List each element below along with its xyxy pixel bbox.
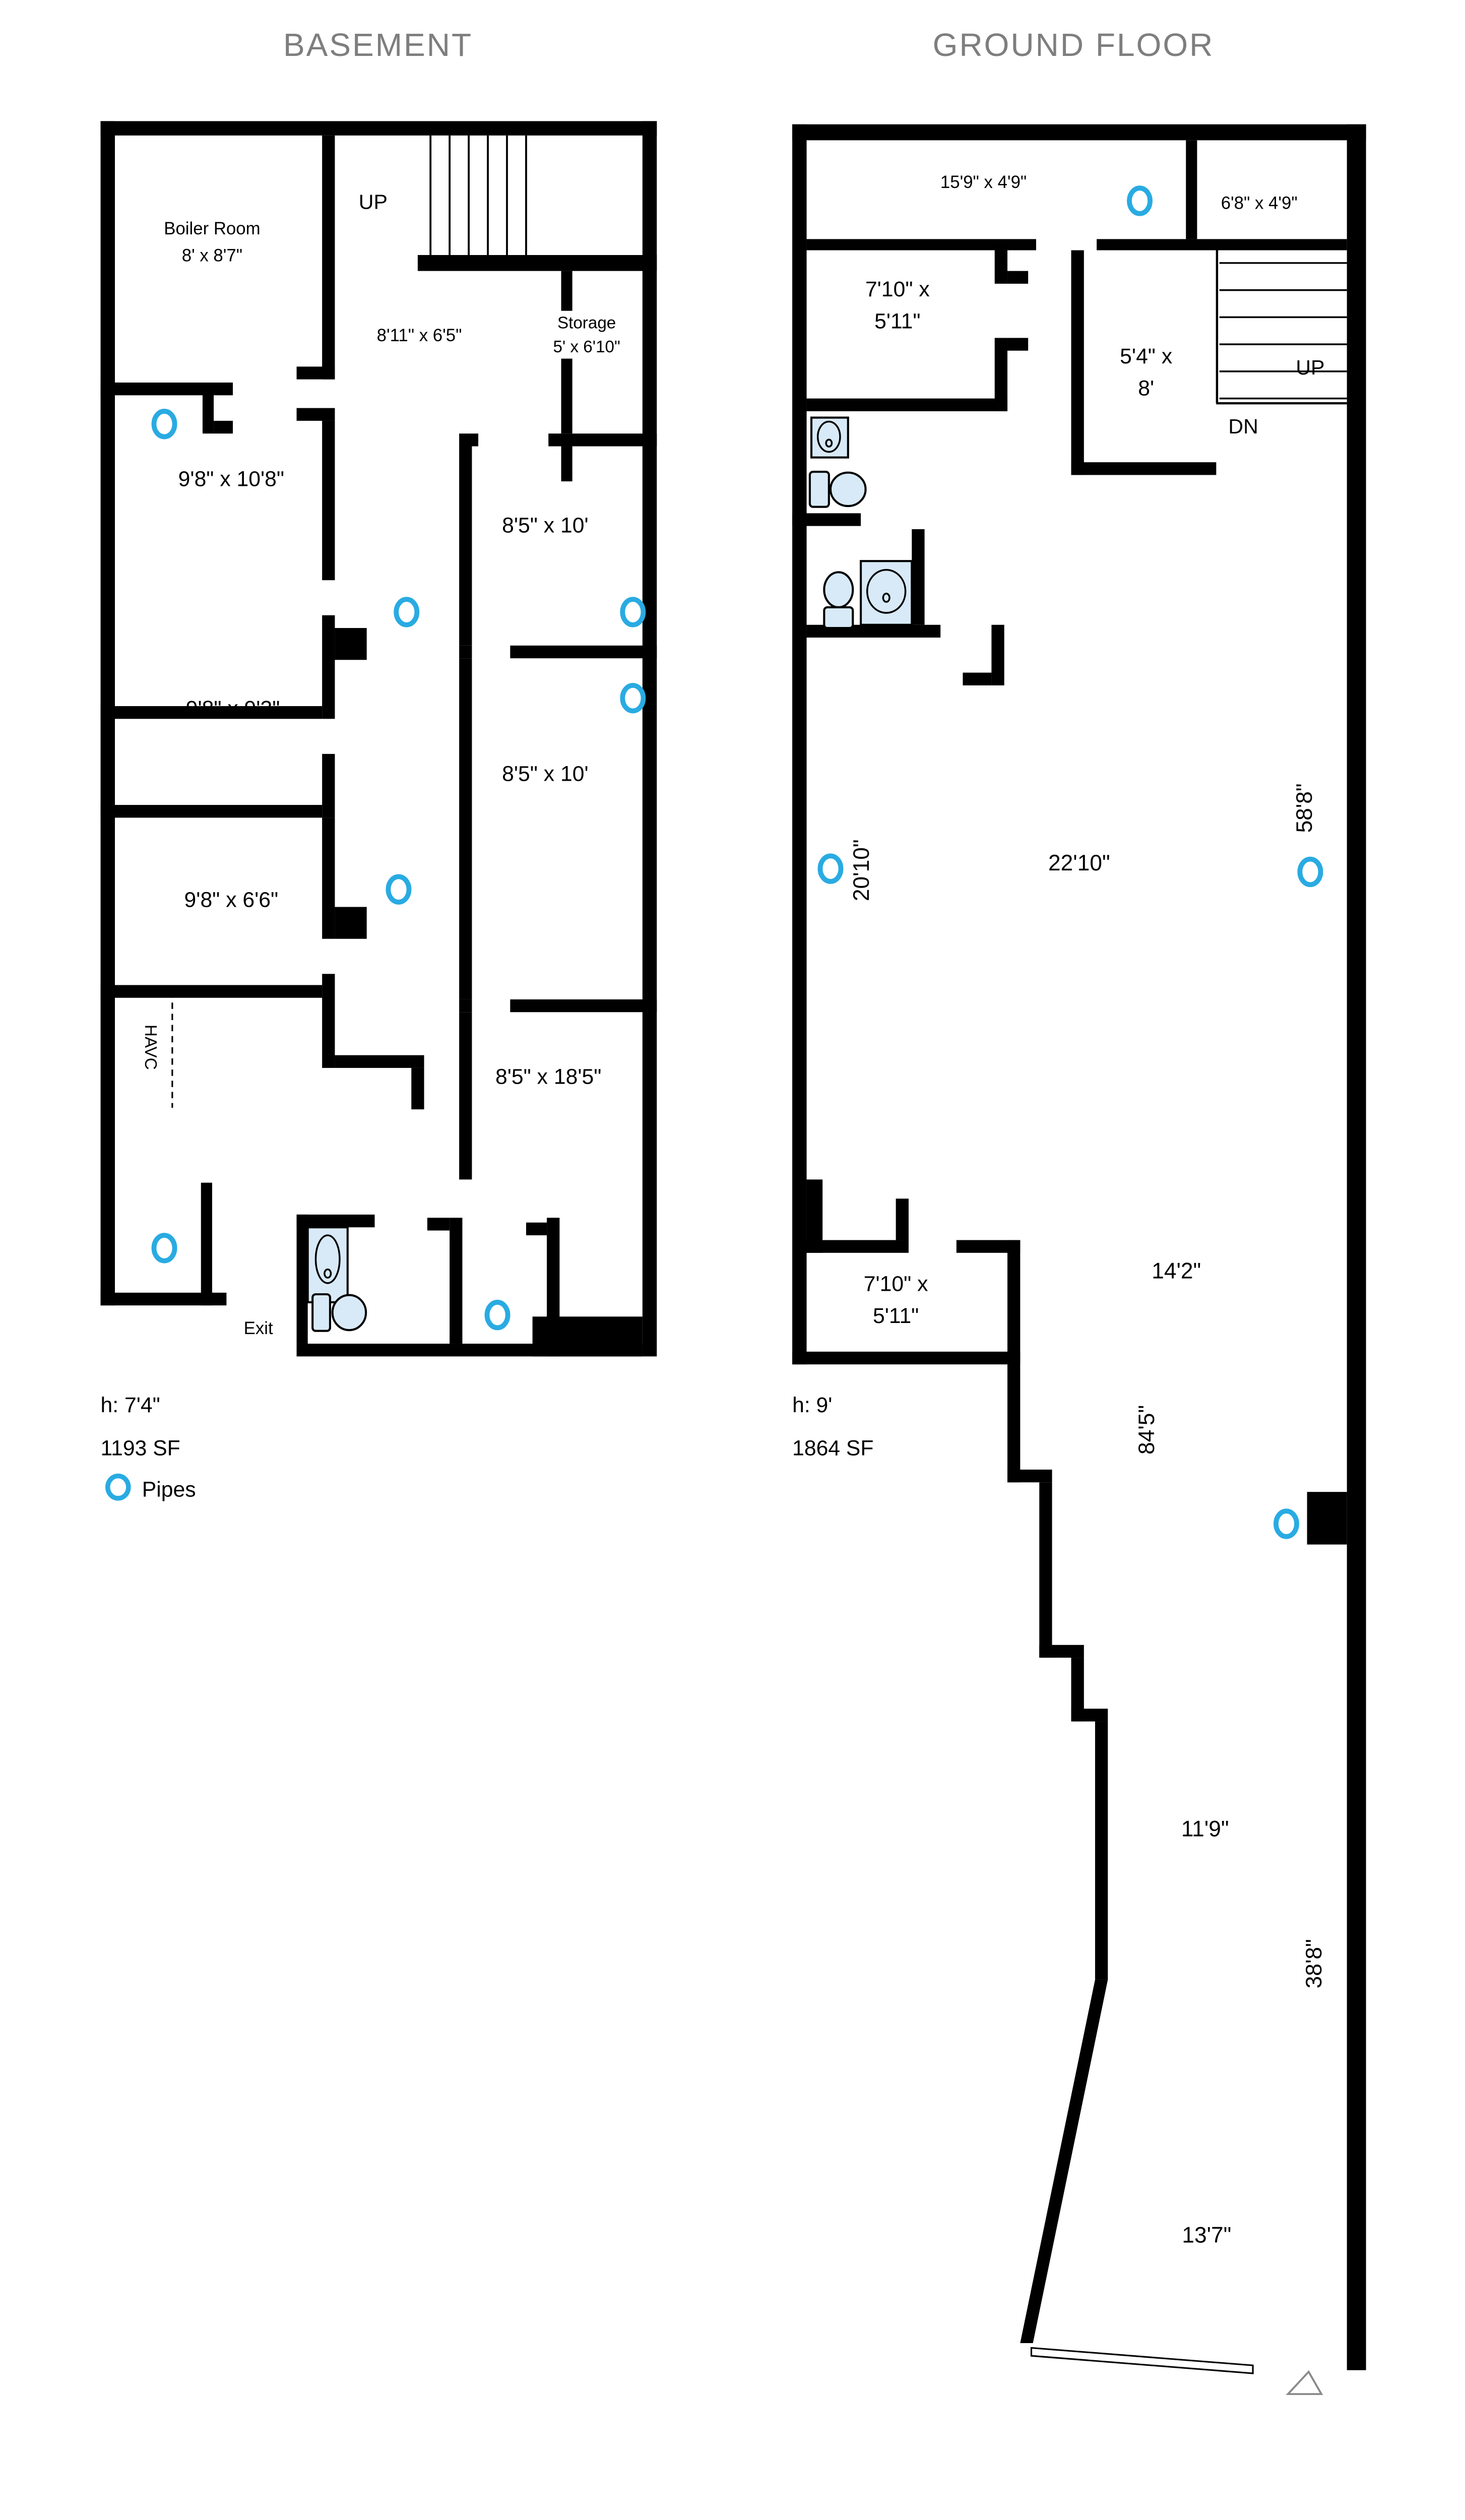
basement-toilet-icon	[312, 1294, 366, 1331]
dimension-label: 13'7"	[1182, 2223, 1231, 2248]
pipe-icon	[388, 876, 409, 902]
dimension-label: 20'10"	[849, 839, 874, 901]
dimension-label: 58'8"	[1292, 783, 1317, 833]
dimension-label: 7'10" x	[864, 1272, 928, 1296]
dimension-label: 38'8"	[1302, 1939, 1326, 1988]
ground-toilet-2-icon	[824, 572, 853, 628]
dimension-label: 11'9"	[1181, 1816, 1229, 1841]
dimension-label: Storage	[557, 313, 616, 332]
dimension-label: DN	[1228, 415, 1258, 438]
basement-plan: Boiler Room8' x 8'7"UP8'11" x 6'5"Storag…	[101, 121, 657, 1501]
dimension-label: UP	[1296, 356, 1324, 379]
floorplan-page: BASEMENT GROUND FLOOR	[0, 0, 1465, 2520]
dimension-label: 8'5" x 10'	[502, 762, 588, 786]
floorplan-drawing: Boiler Room8' x 8'7"UP8'11" x 6'5"Storag…	[0, 0, 1465, 2520]
ground-sink-1-icon	[811, 418, 848, 458]
pipe-icon	[154, 411, 174, 437]
basement-sink-icon	[308, 1227, 348, 1302]
ground-floor-plan: 15'9" x 4'9"6'8" x 4'9"7'10" x5'11"5'4" …	[792, 124, 1366, 2394]
pipe-icon	[487, 1302, 507, 1328]
dimension-label: 8'5" x 10'	[502, 513, 588, 537]
dimension-label: Exit	[244, 1319, 273, 1338]
dimension-label: 8'5" x 18'5"	[495, 1065, 601, 1089]
dimension-label: h: 7'4"	[101, 1393, 160, 1417]
dimension-label: 8'	[1138, 376, 1154, 400]
ground-walls	[792, 124, 1366, 2370]
ground-stairs	[1216, 250, 1347, 404]
ground-labels: 15'9" x 4'9"6'8" x 4'9"7'10" x5'11"5'4" …	[792, 173, 1326, 2248]
entry-triangle-icon	[1288, 2372, 1321, 2394]
pipe-icon	[622, 685, 643, 711]
dimension-label: 8' x 8'7"	[182, 246, 242, 266]
ground-sink-2-icon	[861, 561, 912, 625]
dimension-label: 15'9" x 4'9"	[940, 173, 1027, 192]
pipe-icon	[1300, 859, 1320, 885]
pipes-legend-icon	[108, 1476, 129, 1498]
pipe-icon	[820, 856, 841, 881]
dimension-label: h: 9'	[792, 1393, 832, 1417]
dimension-label: 9'8" x 6'6"	[184, 888, 279, 912]
dimension-label: 5'4" x	[1120, 344, 1172, 368]
dimension-label: 22'10"	[1048, 851, 1110, 875]
entry-door-line	[1031, 2348, 1253, 2373]
dimension-label: UP	[359, 190, 388, 213]
dimension-label: 7'10" x	[865, 277, 930, 301]
dimension-label: 14'2"	[1152, 1258, 1201, 1283]
dimension-label: 8'11" x 6'5"	[377, 326, 462, 345]
basement-pipes	[154, 411, 643, 1328]
dimension-label: 1193 SF	[101, 1436, 180, 1460]
ground-toilet-1-icon	[810, 472, 866, 507]
pipe-icon	[1276, 1511, 1297, 1537]
dimension-label: Pipes	[142, 1478, 196, 1502]
pipe-icon	[1129, 188, 1150, 214]
pipe-icon	[396, 599, 417, 625]
dimension-label: 9'8" x 10'8"	[178, 467, 284, 491]
pipe-icon	[622, 599, 643, 625]
basement-walls	[101, 121, 657, 1356]
dimension-label: 6'8" x 4'9"	[1221, 194, 1298, 213]
dimension-label: 84'5"	[1134, 1405, 1159, 1455]
dimension-label: 5' x 6'10"	[553, 338, 620, 356]
dimension-label: Boiler Room	[164, 219, 260, 238]
dimension-label: 9'8" x 9'3"	[186, 697, 280, 721]
dimension-label: 5'11"	[874, 309, 920, 333]
pipe-icon	[154, 1235, 174, 1261]
dimension-label: HAVC	[141, 1025, 160, 1070]
dimension-label: 5'11"	[873, 1304, 919, 1328]
basement-stairs	[430, 136, 526, 255]
dimension-label: 1864 SF	[792, 1436, 873, 1460]
